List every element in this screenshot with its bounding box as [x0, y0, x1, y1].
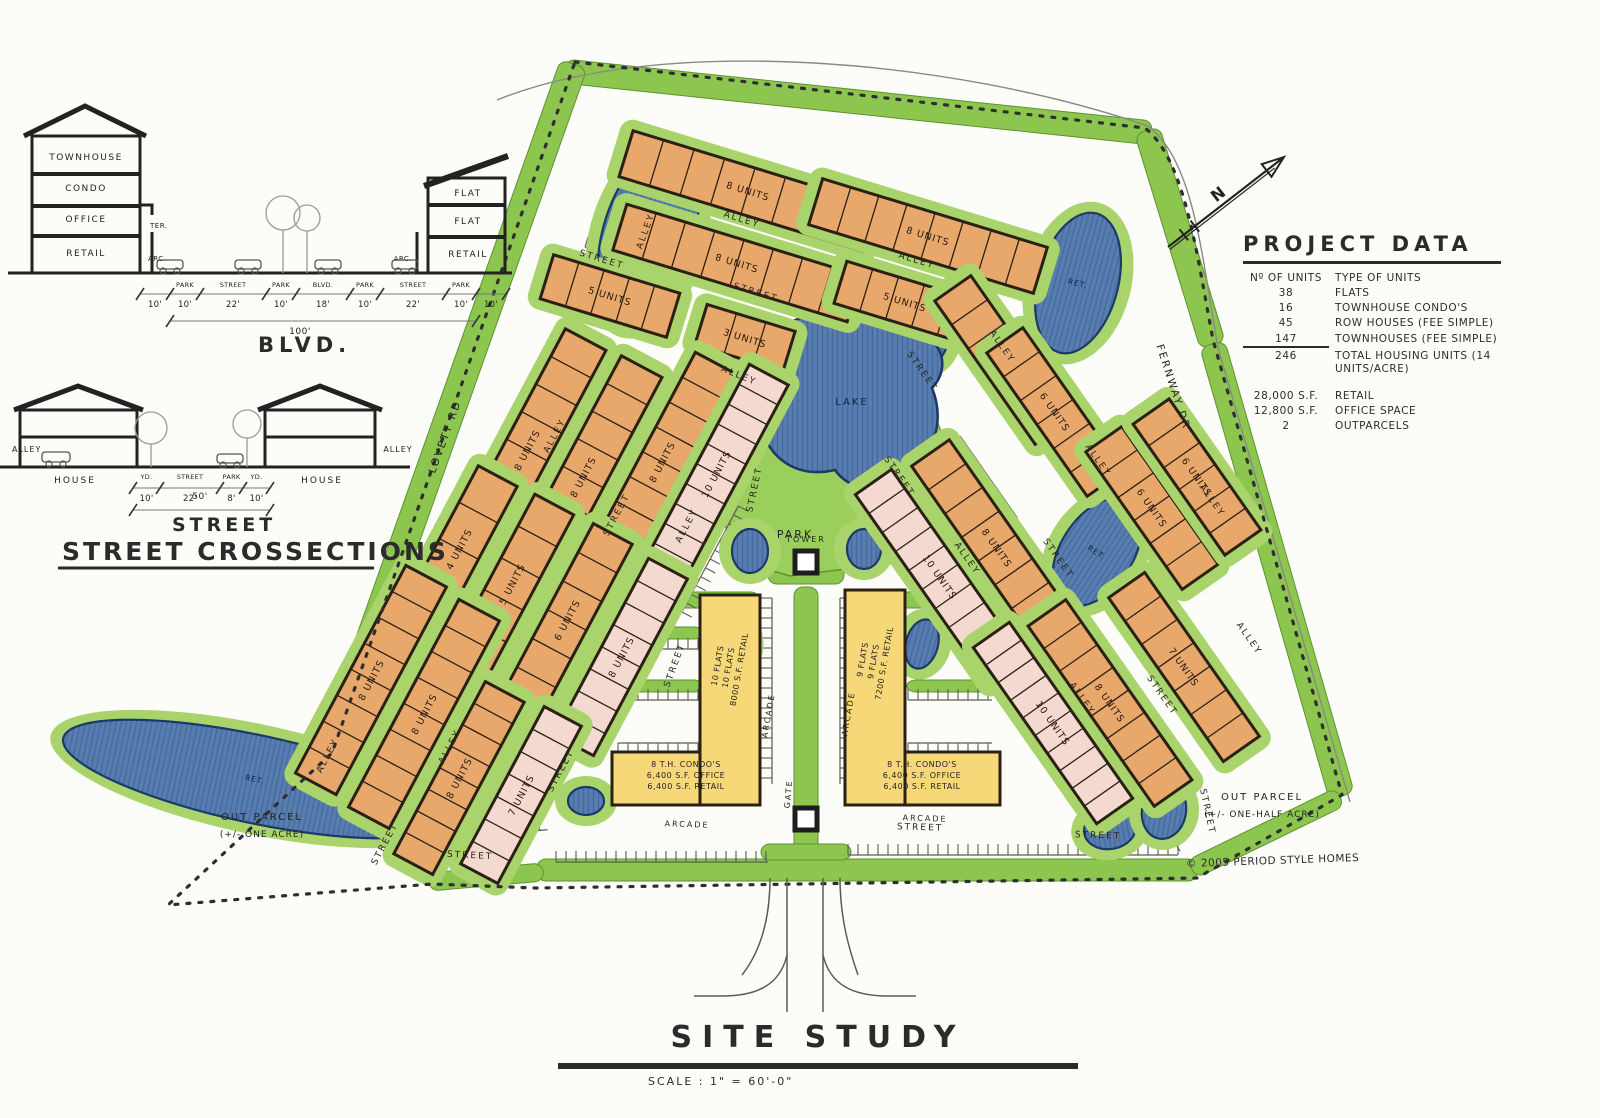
pd-row-label: RETAIL [1335, 390, 1501, 403]
svg-text:6,400 S.F. OFFICE: 6,400 S.F. OFFICE [647, 771, 725, 780]
svg-text:6,400 S.F. OFFICE: 6,400 S.F. OFFICE [883, 771, 961, 780]
svg-text:10': 10' [274, 300, 288, 310]
pd-row-label: TOWNHOUSES (FEE SIMPLE) [1335, 333, 1501, 348]
green-strip [761, 844, 851, 860]
road-label: ARCADE [902, 813, 947, 824]
svg-text:PARK: PARK [272, 281, 290, 289]
svg-text:10': 10' [484, 300, 498, 310]
site-study-sheet: RET.RET.RET.RET.LAKE8 UNITS8 UNITS8 UNIT… [0, 0, 1600, 1118]
svg-text:22': 22' [406, 300, 420, 310]
scale-note: SCALE : 1" = 60'-0" [558, 1075, 1078, 1088]
svg-text:10': 10' [178, 300, 192, 310]
svg-text:8 T.H. CONDO'S: 8 T.H. CONDO'S [651, 760, 721, 769]
svg-text:HOUSE: HOUSE [54, 476, 96, 486]
svg-text:(+/- ONE-HALF ACRE): (+/- ONE-HALF ACRE) [1204, 810, 1320, 820]
pd-row-number: 16 [1243, 302, 1329, 315]
svg-text:22': 22' [226, 300, 240, 310]
road-label: STREET [897, 822, 944, 834]
entry-road-line [742, 878, 770, 975]
svg-text:ALLEY: ALLEY [383, 445, 412, 454]
svg-text:ALLEY: ALLEY [12, 445, 41, 454]
road-label: GATE [783, 779, 794, 809]
parking-comb [761, 598, 772, 784]
gate [795, 808, 817, 830]
svg-text:PARK: PARK [176, 281, 194, 289]
tower [795, 551, 817, 573]
retention-pond [719, 518, 781, 584]
pd-row-label: ROW HOUSES (FEE SIMPLE) [1335, 317, 1501, 330]
svg-text:(+/- ONE ACRE): (+/- ONE ACRE) [220, 830, 304, 840]
pd-row-label: TOWNHOUSE CONDO'S [1335, 302, 1501, 315]
pd-row-number: 28,000 S.F. [1243, 390, 1329, 403]
pd-row-label: OUTPARCELS [1335, 420, 1501, 433]
svg-text:10': 10' [148, 300, 162, 310]
svg-text:LAKE: LAKE [835, 397, 869, 408]
svg-text:YD.: YD. [140, 473, 153, 481]
blvd-floor-label: RETAIL [448, 250, 488, 260]
svg-text:8': 8' [227, 494, 235, 504]
road-label: STREET [1075, 830, 1122, 842]
title-block: SITE STUDY SCALE : 1" = 60'-0" [558, 1020, 1078, 1088]
svg-text:6,400 S.F. RETAIL: 6,400 S.F. RETAIL [647, 782, 724, 791]
blvd-floor-label: FLAT [454, 189, 481, 199]
pd-row-number: 2 [1243, 420, 1329, 433]
svg-text:PARK: PARK [223, 473, 241, 481]
svg-text:PARK: PARK [356, 281, 374, 289]
pd-row-label: FLATS [1335, 287, 1501, 300]
pd-row-number: 38 [1243, 287, 1329, 300]
svg-text:10': 10' [454, 300, 468, 310]
svg-text:6,400 S.F. RETAIL: 6,400 S.F. RETAIL [883, 782, 960, 791]
entry-road-line [694, 955, 787, 996]
svg-text:TER.: TER. [149, 222, 168, 230]
pd-header-left: Nº OF UNITS [1243, 272, 1329, 285]
svg-text:10': 10' [358, 300, 372, 310]
svg-text:10': 10' [249, 494, 263, 504]
blvd-floor-label: FLAT [454, 217, 481, 227]
svg-text:ARC.: ARC. [394, 255, 412, 263]
street-section: HOUSEHOUSEALLEYALLEYYD.10'STREET22'PARK8… [0, 386, 413, 516]
project-data-table: Nº OF UNITS TYPE OF UNITS 38FLATS16TOWNH… [1243, 272, 1501, 433]
road-label: ALLEY [1234, 621, 1264, 657]
project-data-panel: PROJECT DATA Nº OF UNITS TYPE OF UNITS 3… [1243, 232, 1501, 433]
svg-text:YD.: YD. [250, 473, 263, 481]
retention-pond [555, 776, 617, 826]
pd-row-number: 12,800 S.F. [1243, 405, 1329, 418]
pd-row-label: TOTAL HOUSING UNITS (14 UNITS/ACRE) [1335, 350, 1501, 376]
svg-text:10': 10' [139, 494, 153, 504]
svg-text:50': 50' [192, 492, 207, 502]
entry-road-line [840, 878, 858, 975]
blvd-section: TOWNHOUSECONDOOFFICERETAILTER.ARC.FLATFL… [8, 106, 512, 337]
pd-row-number: 147 [1243, 333, 1329, 348]
road-label: TOWER [785, 535, 826, 544]
street-section-title: STREET [172, 514, 276, 536]
svg-text:OUT PARCEL: OUT PARCEL [1221, 792, 1303, 803]
svg-text:OUT PARCEL: OUT PARCEL [221, 812, 303, 823]
svg-text:8 T.H. CONDO'S: 8 T.H. CONDO'S [887, 760, 957, 769]
road-label: ARCADE [760, 693, 777, 739]
entry-road-line [823, 955, 916, 996]
blvd-floor-label: CONDO [65, 184, 107, 194]
svg-text:PARK: PARK [452, 281, 470, 289]
svg-text:STREET: STREET [220, 281, 247, 289]
pd-spacer [1243, 378, 1501, 388]
blvd-floor-label: OFFICE [65, 215, 106, 225]
pd-header-right: TYPE OF UNITS [1335, 272, 1501, 285]
svg-text:STREET: STREET [400, 281, 427, 289]
blvd-floor-label: TOWNHOUSE [48, 153, 123, 163]
svg-text:18': 18' [316, 300, 330, 310]
pd-row-number: 246 [1243, 350, 1329, 376]
road-label: ARCADE [664, 819, 709, 830]
cross-sections-heading: STREET CROSSECTIONS [62, 537, 449, 566]
pd-row-label: OFFICE SPACE [1335, 405, 1501, 418]
svg-text:STREET: STREET [177, 473, 204, 481]
site-plan-svg: RET.RET.RET.RET.LAKE8 UNITS8 UNITS8 UNIT… [0, 0, 1600, 1118]
project-data-title: PROJECT DATA [1243, 232, 1501, 264]
blvd-floor-label: RETAIL [66, 249, 106, 259]
pd-row-number: 45 [1243, 317, 1329, 330]
svg-text:BLVD.: BLVD. [313, 281, 333, 289]
svg-text:100': 100' [289, 327, 311, 337]
svg-text:HOUSE: HOUSE [301, 476, 343, 486]
page-title: SITE STUDY [558, 1020, 1078, 1069]
